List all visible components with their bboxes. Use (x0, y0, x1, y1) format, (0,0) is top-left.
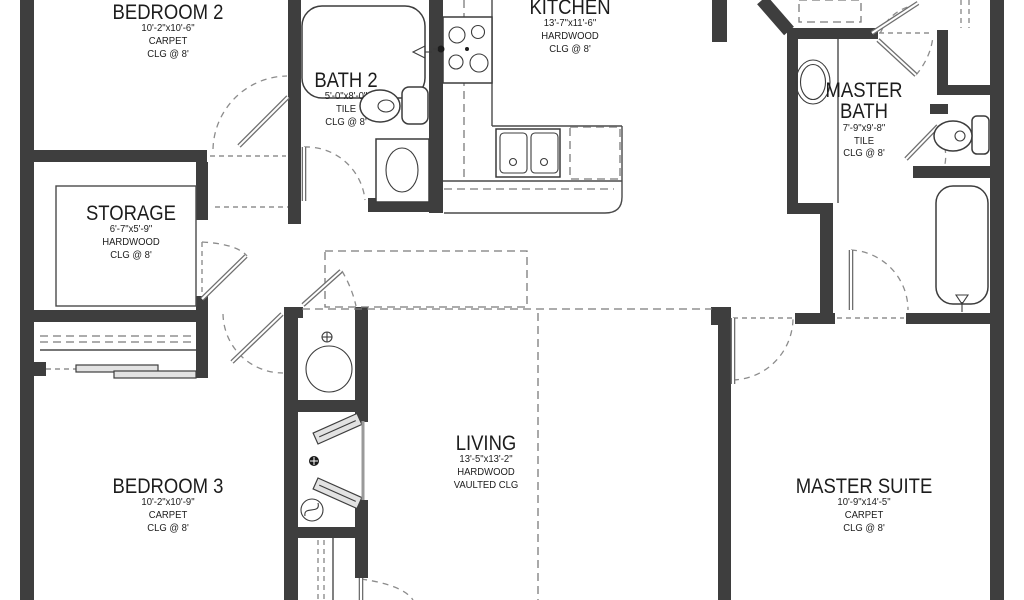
sink-icon (376, 139, 429, 202)
ceiling-feature-outline (325, 251, 527, 307)
master-tub-icon (936, 186, 988, 312)
storage-door-swing (202, 242, 247, 299)
bathtub-icon (302, 6, 432, 98)
bifold-door-icon (309, 414, 363, 509)
bedroom2-door-swing (213, 76, 288, 149)
water-heater-icon (306, 332, 352, 392)
utility-door-swing (303, 271, 356, 306)
bath2-door-swing (304, 147, 365, 201)
floor-plan-canvas (0, 0, 1024, 600)
master-bath-door-swing (851, 250, 908, 310)
sliding-door-icon (76, 365, 196, 378)
gas-symbol-icon (301, 499, 323, 521)
master-sink-icon (796, 60, 830, 104)
master-toilet-icon (934, 116, 989, 154)
kitchen-bar-outline (444, 181, 622, 213)
bedroom3-door-swing (223, 314, 283, 373)
corner-door-swing (872, 3, 918, 34)
hall-door-swing (878, 36, 933, 75)
shower-outline (799, 0, 861, 22)
double-sink-icon (496, 129, 560, 177)
master-suite-door-swing (733, 318, 793, 384)
angled-wall (762, 0, 789, 31)
entry-door-swing (361, 578, 413, 600)
storage-shelf-outline (56, 186, 196, 306)
dishwasher-outline (570, 127, 620, 179)
walls (20, 0, 1004, 600)
floor-plan: BEDROOM 2 10'-2"x10'-6" CARPET CLG @ 8' … (0, 0, 1024, 600)
